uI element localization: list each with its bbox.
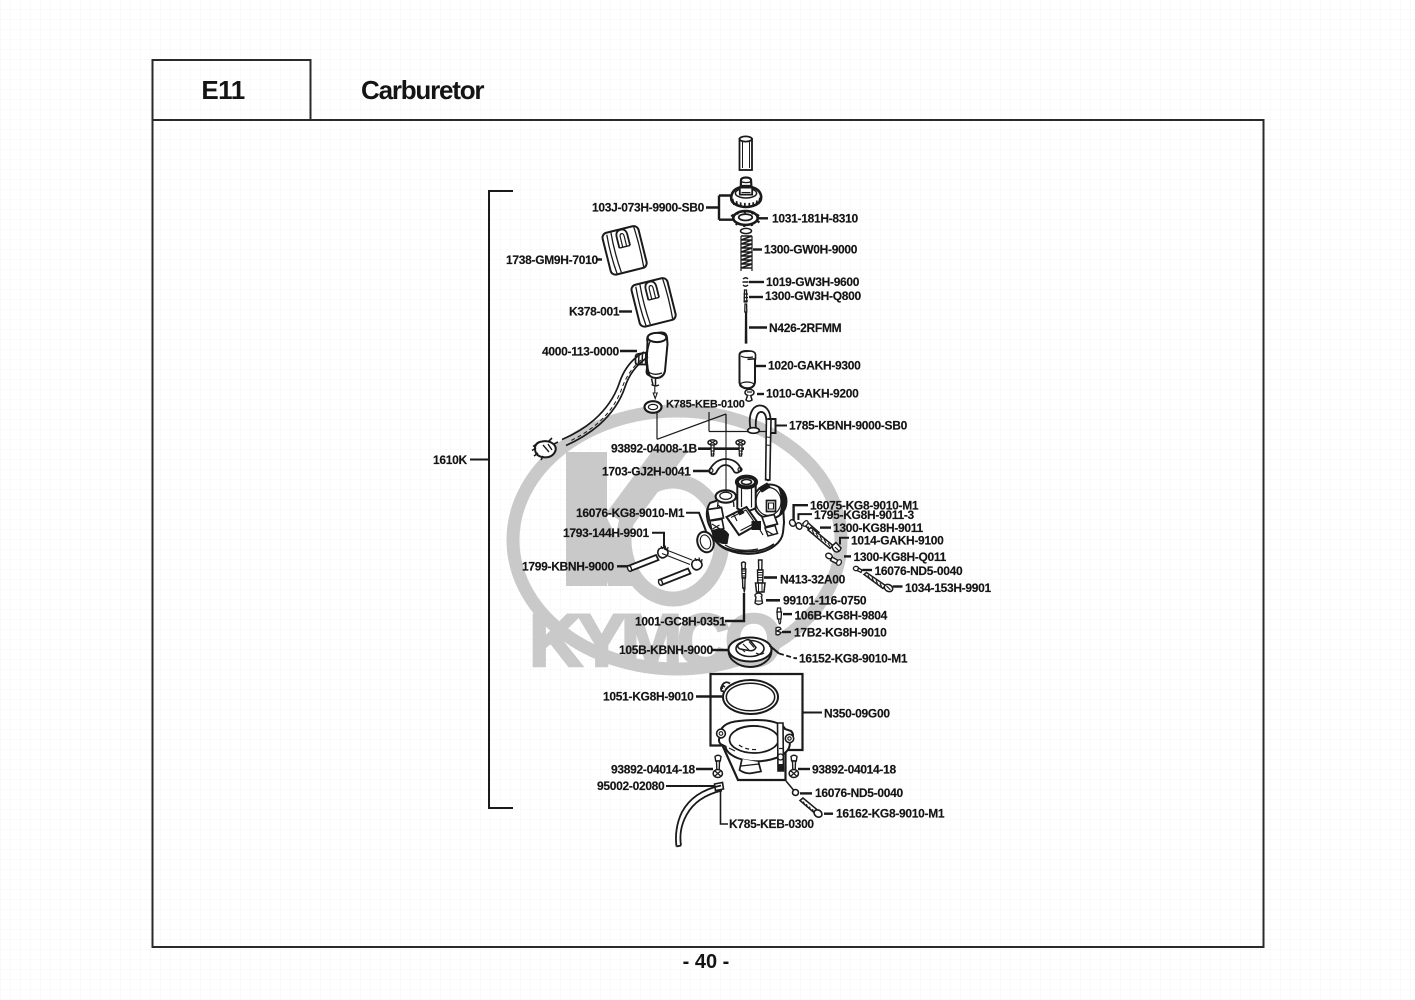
svg-text:1610K: 1610K: [433, 453, 467, 467]
svg-text:N350-09G00: N350-09G00: [824, 707, 890, 721]
svg-text:1793-144H-9901: 1793-144H-9901: [563, 526, 649, 540]
svg-text:99101-116-0750: 99101-116-0750: [783, 594, 867, 608]
svg-text:1300-KG8H-Q011: 1300-KG8H-Q011: [854, 550, 947, 564]
svg-text:N413-32A00: N413-32A00: [780, 573, 846, 587]
svg-text:1738-GM9H-7010: 1738-GM9H-7010: [506, 253, 598, 267]
svg-text:1785-KBNH-9000-SB0: 1785-KBNH-9000-SB0: [789, 419, 908, 433]
svg-text:1300-GW3H-Q800: 1300-GW3H-Q800: [765, 289, 861, 303]
svg-text:- 40 -: - 40 -: [683, 951, 730, 973]
svg-text:17B2-KG8H-9010: 17B2-KG8H-9010: [794, 626, 887, 640]
svg-text:16076-ND5-0040: 16076-ND5-0040: [875, 564, 963, 578]
svg-text:16076-KG8-9010-M1: 16076-KG8-9010-M1: [576, 506, 685, 520]
svg-text:1014-GAKH-9100: 1014-GAKH-9100: [851, 534, 944, 548]
svg-text:106B-KG8H-9804: 106B-KG8H-9804: [795, 609, 888, 623]
svg-text:1034-153H-9901: 1034-153H-9901: [905, 581, 991, 595]
svg-text:103J-073H-9900-SB0: 103J-073H-9900-SB0: [592, 201, 705, 215]
svg-text:K378-001: K378-001: [569, 305, 620, 319]
svg-text:1019-GW3H-9600: 1019-GW3H-9600: [766, 275, 860, 289]
svg-text:K785-KEB-0300: K785-KEB-0300: [729, 817, 814, 831]
svg-text:N426-2RFMM: N426-2RFMM: [769, 321, 842, 335]
svg-text:1031-181H-8310: 1031-181H-8310: [772, 212, 858, 226]
svg-text:105B-KBNH-9000: 105B-KBNH-9000: [619, 643, 713, 657]
svg-text:1001-GC8H-0351: 1001-GC8H-0351: [635, 615, 726, 629]
svg-text:E11: E11: [201, 75, 244, 105]
svg-text:95002-02080: 95002-02080: [597, 779, 665, 793]
svg-text:16162-KG8-9010-M1: 16162-KG8-9010-M1: [836, 807, 945, 821]
svg-text:K785-KEB-0100: K785-KEB-0100: [666, 399, 745, 411]
svg-text:1703-GJ2H-0041: 1703-GJ2H-0041: [602, 465, 691, 479]
svg-text:93892-04014-18: 93892-04014-18: [611, 763, 696, 777]
svg-text:16152-KG8-9010-M1: 16152-KG8-9010-M1: [799, 652, 908, 666]
svg-text:93892-04014-18: 93892-04014-18: [812, 763, 897, 777]
svg-text:16076-ND5-0040: 16076-ND5-0040: [815, 786, 903, 800]
svg-text:1300-GW0H-9000: 1300-GW0H-9000: [764, 243, 858, 257]
svg-text:1799-KBNH-9000: 1799-KBNH-9000: [522, 560, 614, 574]
svg-text:1010-GAKH-9200: 1010-GAKH-9200: [766, 387, 859, 401]
svg-text:Carburetor: Carburetor: [361, 75, 484, 105]
svg-text:93892-04008-1B: 93892-04008-1B: [611, 442, 698, 456]
svg-text:1020-GAKH-9300: 1020-GAKH-9300: [768, 359, 861, 373]
svg-text:4000-113-0000: 4000-113-0000: [542, 345, 619, 359]
svg-text:1051-KG8H-9010: 1051-KG8H-9010: [603, 690, 694, 704]
svg-text:1795-KG8H-9011-3: 1795-KG8H-9011-3: [814, 508, 915, 522]
